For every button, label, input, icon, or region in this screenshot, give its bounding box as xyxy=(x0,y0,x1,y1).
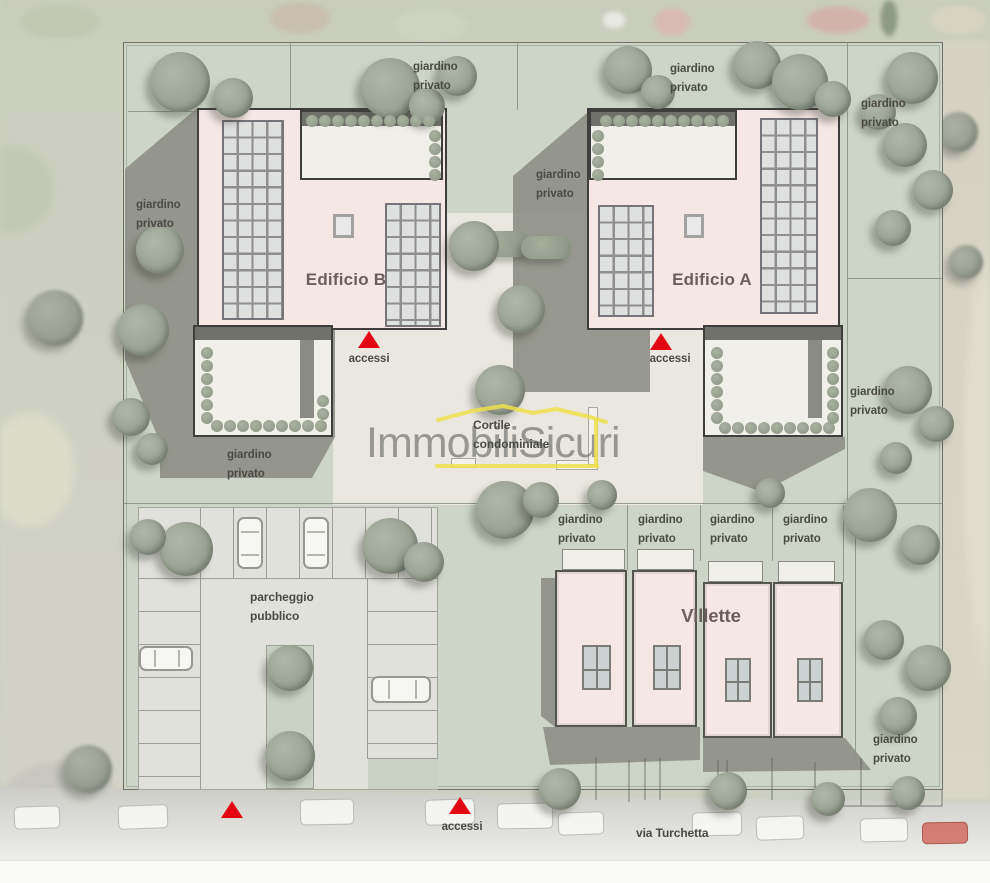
label-line: privato xyxy=(783,530,828,549)
label-accessi: accessi xyxy=(645,350,695,369)
label-line: privato xyxy=(710,530,755,549)
label-line: giardino xyxy=(783,511,828,530)
access-marker-icon xyxy=(221,801,243,818)
label-giardino-privato: giardinoprivato xyxy=(536,166,581,203)
label-line: giardino xyxy=(413,58,458,77)
label-parcheggio-pubblico: parcheggio pubblico xyxy=(250,588,314,627)
label-edificio-a: Edificio A xyxy=(664,266,760,294)
label-line: giardino xyxy=(861,95,906,114)
label-giardino-privato: giardinoprivato xyxy=(558,511,603,548)
label-giardino-privato: giardinoprivato xyxy=(850,383,895,420)
label-cortile-condominiale: Cortile condominiale xyxy=(473,416,549,455)
access-marker-icon xyxy=(358,331,380,348)
label-via-turchetta: via Turchetta xyxy=(636,824,736,843)
label-line: privato xyxy=(850,402,895,421)
label-line: giardino xyxy=(536,166,581,185)
label-line: parcheggio xyxy=(250,588,314,607)
label-accessi: accessi xyxy=(437,818,487,837)
label-line: privato xyxy=(873,750,918,769)
label-line: giardino xyxy=(710,511,755,530)
label-line: privato xyxy=(670,79,715,98)
label-line: pubblico xyxy=(250,607,314,626)
label-villette: Villette xyxy=(656,601,766,631)
label-giardino-privato: giardinoprivato xyxy=(638,511,683,548)
label-line: giardino xyxy=(638,511,683,530)
label-line: giardino xyxy=(136,196,181,215)
label-line: giardino xyxy=(227,446,272,465)
label-line: privato xyxy=(227,465,272,484)
label-line: privato xyxy=(638,530,683,549)
label-line: giardino xyxy=(873,731,918,750)
label-giardino-privato: giardinoprivato xyxy=(783,511,828,548)
site-plan-canvas: ImmobiliSicuri Edificio B Edificio A Vil… xyxy=(0,0,990,883)
label-giardino-privato: giardinoprivato xyxy=(710,511,755,548)
label-line: privato xyxy=(413,77,458,96)
label-line: privato xyxy=(536,185,581,204)
access-marker-icon xyxy=(650,333,672,350)
label-line: condominiale xyxy=(473,435,549,454)
label-giardino-privato: giardinoprivato xyxy=(136,196,181,233)
label-line: giardino xyxy=(850,383,895,402)
label-edificio-b: Edificio B xyxy=(298,266,394,294)
label-line: giardino xyxy=(558,511,603,530)
label-giardino-privato: giardinoprivato xyxy=(861,95,906,132)
label-giardino-privato: giardinoprivato xyxy=(227,446,272,483)
label-giardino-privato: giardinoprivato xyxy=(873,731,918,768)
access-marker-icon xyxy=(449,797,471,814)
label-giardino-privato: giardinoprivato xyxy=(413,58,458,95)
label-line: Cortile xyxy=(473,416,549,435)
label-line: privato xyxy=(136,215,181,234)
label-line: privato xyxy=(558,530,603,549)
label-accessi: accessi xyxy=(344,350,394,369)
label-line: giardino xyxy=(670,60,715,79)
label-line: privato xyxy=(861,114,906,133)
label-giardino-privato: giardinoprivato xyxy=(670,60,715,97)
